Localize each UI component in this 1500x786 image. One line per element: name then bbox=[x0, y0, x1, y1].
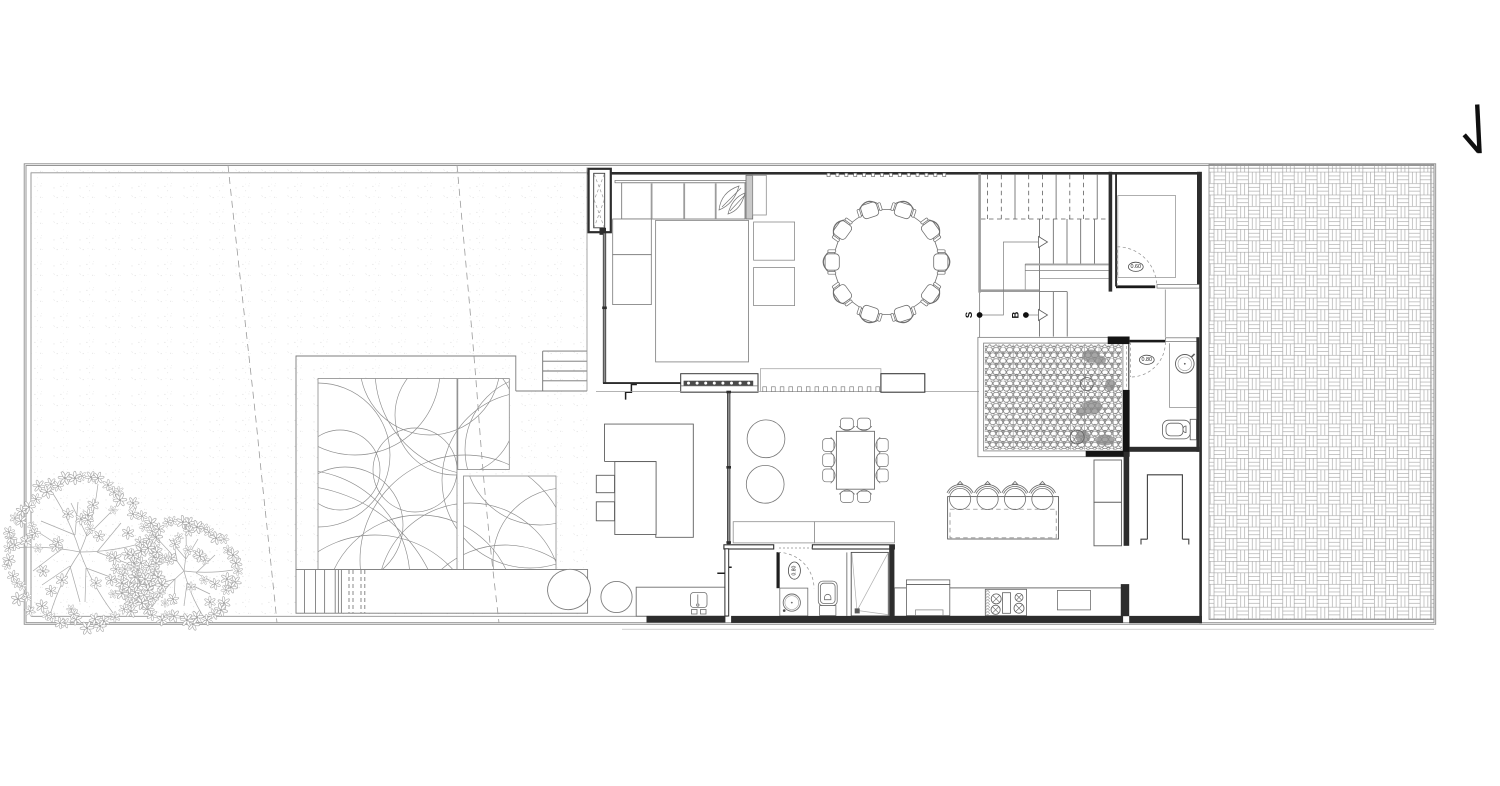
svg-text:B: B bbox=[1011, 311, 1022, 318]
svg-text:S: S bbox=[964, 312, 975, 318]
svg-text:0.60: 0.60 bbox=[1131, 264, 1142, 270]
svg-text:0.80: 0.80 bbox=[1142, 357, 1153, 363]
svg-text:0.80: 0.80 bbox=[791, 566, 797, 576]
